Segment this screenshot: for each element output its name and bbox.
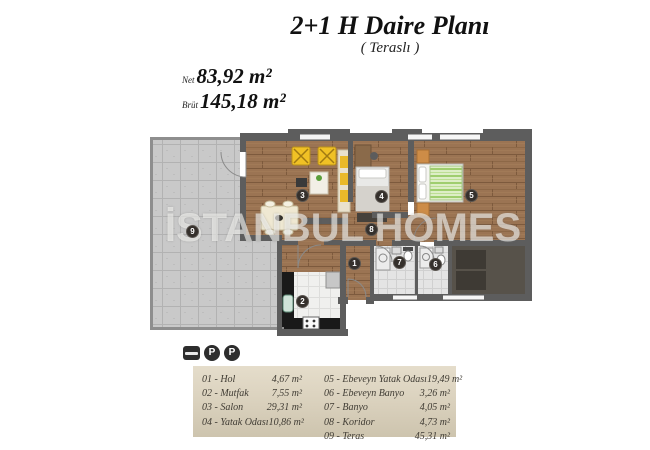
legend-item: 06 - Ebeveyn Banyo 3,26 m² [324, 387, 450, 401]
room-marker-koridor: 8 [365, 223, 378, 236]
legend-value: 45,31 m² [415, 430, 450, 444]
room-marker-mutfak: 2 [296, 295, 309, 308]
room-legend: 01 - Hol 4,67 m² 02 - Mutfak 7,55 m² 03 … [193, 366, 456, 437]
legend-value: 7,55 m² [272, 387, 302, 401]
legend-value: 4,67 m² [272, 373, 302, 387]
legend-label: 07 - Banyo [324, 401, 368, 415]
storage-box-icon [183, 346, 200, 360]
kitchen [282, 272, 340, 330]
legend-item: 02 - Mutfak 7,55 m² [202, 387, 302, 401]
wardrobe-zone [452, 246, 525, 295]
legend-label: 04 - Yatak Odası [202, 416, 269, 430]
legend-label: 05 - Ebeveyn Yatak Odası [324, 373, 427, 387]
room-marker-yatak: 4 [375, 190, 388, 203]
legend-item: 04 - Yatak Odası 10,86 m² [202, 416, 302, 430]
legend-label: 03 - Salon [202, 401, 243, 415]
legend-item: 09 - Teras 45,31 m² [324, 430, 450, 444]
room-marker-salon: 3 [296, 189, 309, 202]
coffee-table [296, 178, 307, 187]
legend-item: 03 - Salon 29,31 m² [202, 401, 302, 415]
legend-value: 29,31 m² [267, 401, 302, 415]
nightstand [417, 150, 429, 163]
fridge [326, 272, 340, 288]
parking-icon: P [204, 345, 220, 361]
legend-value: 19,49 m² [427, 373, 462, 387]
legend-label: 06 - Ebeveyn Banyo [324, 387, 404, 401]
legend-label: 01 - Hol [202, 373, 235, 387]
legend-item: 05 - Ebeveyn Yatak Odası 19,49 m² [324, 373, 450, 387]
kitchen-sink [283, 295, 293, 312]
amenity-icons: P P [183, 345, 240, 361]
nightstand [417, 203, 429, 216]
desk [355, 145, 371, 167]
legend-item: 07 - Banyo 4,05 m² [324, 401, 450, 415]
legend-value: 3,26 m² [420, 387, 450, 401]
bath-sink [392, 247, 401, 254]
legend-item: 01 - Hol 4,67 m² [202, 373, 302, 387]
stove [303, 317, 319, 329]
room-marker-ebanyo: 6 [429, 258, 442, 271]
legend-item: 08 - Koridor 4,73 m² [324, 416, 450, 430]
legend-label: 08 - Koridor [324, 416, 375, 430]
legend-label: 09 - Teras [324, 430, 364, 444]
legend-column-right: 05 - Ebeveyn Yatak Odası 19,49 m² 06 - E… [324, 373, 450, 437]
legend-column-left: 01 - Hol 4,67 m² 02 - Mutfak 7,55 m² 03 … [202, 373, 302, 437]
parking-icon: P [224, 345, 240, 361]
toilet-tank [403, 247, 413, 251]
bath-sink [435, 247, 443, 253]
room-marker-ebeveyn: 5 [465, 189, 478, 202]
legend-value: 10,86 m² [269, 416, 304, 430]
room-marker-banyo: 7 [393, 256, 406, 269]
bathroom [374, 246, 415, 295]
legend-value: 4,05 m² [420, 401, 450, 415]
legend-label: 02 - Mutfak [202, 387, 249, 401]
room-marker-teras: 9 [186, 225, 199, 238]
legend-value: 4,73 m² [420, 416, 450, 430]
room-marker-hol: 1 [348, 257, 361, 270]
desk-chair [370, 152, 378, 160]
